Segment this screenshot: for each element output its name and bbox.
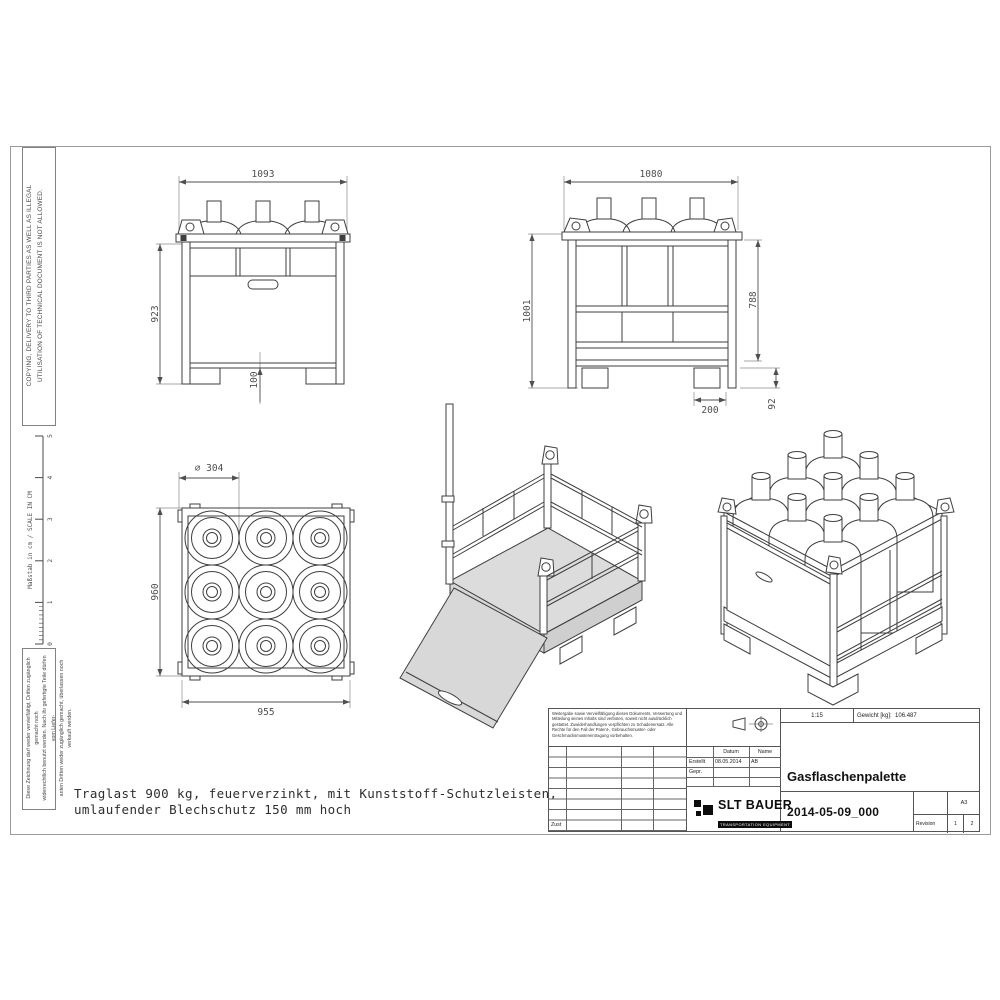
german-notice-text: Diese Zeichnung darf weder vervielfältig… — [25, 650, 53, 806]
copy-notice-line2: UTILISATION OF TECHNICAL DOCUMENT IS NOT… — [36, 149, 47, 422]
drawing-note: Traglast 900 kg, feuerverzinkt, mit Kuns… — [74, 786, 557, 817]
front-view: 1093 923 100 — [132, 156, 404, 408]
note-line1: Traglast 900 kg, feuerverzinkt, mit Kuns… — [74, 786, 557, 802]
ruler-label: Maßstab in cm / SCALE IN CM — [27, 491, 34, 589]
svg-text:0: 0 — [47, 642, 54, 646]
cylinder-circles — [185, 511, 347, 673]
number-row: 2014-05-09_000 A3 Revision 1 2 — [781, 791, 979, 831]
created-date: 08.05.2014 — [715, 759, 742, 765]
dim-front-width: 1093 — [252, 169, 275, 180]
svg-text:3: 3 — [47, 517, 54, 521]
approval-table: Datum Name Erstellt 08.05.2014 AB Gepr. — [687, 747, 781, 787]
dim-side-foot-height: 92 — [767, 398, 778, 409]
company-logo: SLT BAUER TRANSPORTATION EQUIPMENT — [687, 787, 781, 831]
drawing-sheet-page: { "colors":{"line":"#3f3f3f","dim_text":… — [0, 0, 1000, 1000]
scale-cell: 1:15 — [781, 709, 853, 723]
weight-label: Gewicht [kg]: — [857, 713, 892, 719]
front-geometry — [176, 201, 350, 384]
dim-top-diameter: ⌀ 304 — [195, 463, 224, 474]
dim-top-width: 955 — [257, 707, 274, 718]
dim-front-height: 923 — [150, 305, 161, 322]
copy-notice-line1: COPYING, DELIVERY TO THIRD PARTIES AS WE… — [25, 149, 36, 422]
title-block-right: 1:15 Gewicht [kg]: 106.487 Gasflaschenpa… — [781, 709, 979, 831]
zust-label: Zust — [551, 822, 561, 828]
dim-side-height-frame: 788 — [748, 291, 759, 308]
company-logo-icon — [693, 799, 715, 821]
svg-text:2: 2 — [47, 559, 54, 563]
ruler-numbers: 0 1 2 3 4 5 — [47, 434, 54, 646]
title-block: Weitergabe sowie Vervielfältigung dieses… — [548, 708, 980, 832]
scale-ruler: Maßstab in cm / SCALE IN CM 0 1 2 3 4 5 — [22, 424, 56, 648]
dim-side-foot-depth: 200 — [701, 405, 718, 416]
top-geometry — [178, 504, 354, 680]
weight-value: 106.487 — [895, 713, 917, 719]
projection-symbol-icon — [730, 716, 776, 732]
format-value: A3 — [961, 800, 968, 806]
copy-notice-text: COPYING, DELIVERY TO THIRD PARTIES AS WE… — [25, 149, 53, 422]
format-revision-block: A3 Revision 1 2 — [913, 792, 979, 832]
iso-loaded-geometry — [718, 431, 954, 706]
german-notice-line2: widerrechtlich benutzt werden. Nach ihr … — [41, 650, 57, 806]
iso-view-ramp-open — [392, 376, 704, 744]
revision-table: Zust — [549, 747, 687, 831]
german-notice-line1: Diese Zeichnung darf weder vervielfältig… — [25, 650, 41, 806]
svg-text:5: 5 — [47, 434, 54, 438]
svg-text:1: 1 — [47, 600, 54, 604]
side-geometry — [562, 198, 742, 388]
ruler-ticks — [35, 436, 43, 644]
sheet-total: 2 — [963, 815, 980, 833]
sheet-current: 1 — [947, 815, 963, 833]
weight-cell: Gewicht [kg]: 106.487 — [853, 709, 979, 723]
created-label: Erstellt — [689, 759, 705, 765]
revision-label: Revision — [916, 821, 935, 827]
scale-value: 1:15 — [811, 713, 823, 719]
format-cell: A3 — [947, 792, 980, 814]
revision-row: Revision 1 2 — [914, 814, 980, 832]
dim-front-foot: 100 — [249, 371, 260, 388]
col-datum: Datum — [713, 749, 749, 755]
drawing-number: 2014-05-09_000 — [787, 805, 879, 819]
note-line2: umlaufender Blechschutz 150 mm hoch — [74, 802, 557, 818]
iso-open-geometry — [400, 404, 652, 728]
dim-side-width: 1080 — [640, 169, 663, 180]
checked-label: Gepr. — [689, 769, 702, 775]
created-name: AB — [751, 759, 758, 765]
german-notice-line3: anten Dritten weder zugänglich gemacht, … — [58, 650, 74, 806]
dim-top-height: 960 — [150, 583, 161, 600]
col-name: Name — [749, 749, 781, 755]
title-block-disclaimer: Weitergabe sowie Vervielfältigung dieses… — [549, 709, 687, 747]
dim-side-height-total: 1001 — [522, 299, 533, 322]
drawing-title: Gasflaschenpalette — [787, 769, 906, 784]
svg-text:4: 4 — [47, 475, 54, 479]
iso-view-loaded — [690, 416, 990, 718]
projection-symbol-cell — [687, 709, 781, 747]
top-view: ⌀ 304 960 955 — [132, 450, 404, 738]
